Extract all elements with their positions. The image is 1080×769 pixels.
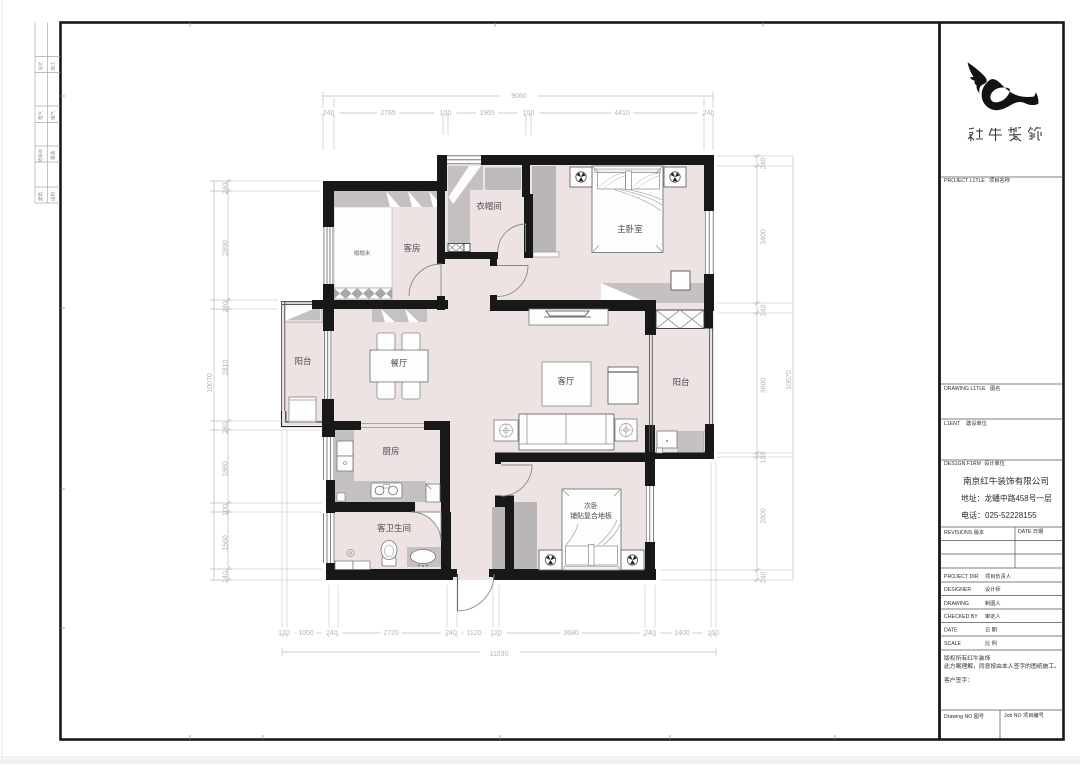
svg-text:Drawing NO 图号: Drawing NO 图号 [944,713,984,720]
svg-text:240: 240 [644,630,656,637]
svg-text:240: 240 [223,571,230,583]
svg-text:CHECKED BY: CHECKED BY [944,614,978,620]
svg-text:阳台: 阳台 [294,356,311,366]
svg-text:DRAWING L1TLE: DRAWING L1TLE [944,386,986,392]
svg-text:240: 240 [223,183,230,195]
svg-text:10670: 10670 [786,370,793,390]
svg-text:PROJECT DIR: PROJECT DIR [944,574,979,580]
svg-text:160: 160 [707,630,719,637]
svg-text:建设单位: 建设单位 [966,419,987,427]
svg-text:建筑: 建筑 [37,192,44,201]
svg-text:地址：龙蟠中路458号一层: 地址：龙蟠中路458号一层 [961,493,1052,503]
svg-text:设计师: 设计师 [985,585,1001,593]
svg-text:3400: 3400 [761,229,768,245]
svg-text:100: 100 [223,504,230,516]
svg-text:1400: 1400 [674,630,690,637]
svg-text:L1ENT: L1ENT [944,421,961,427]
svg-text:2720: 2720 [383,630,399,637]
svg-text:图名: 图名 [990,384,1000,392]
svg-text:11030: 11030 [490,651,509,658]
svg-text:2810: 2810 [223,360,230,376]
svg-text:1965: 1965 [479,110,495,117]
svg-text:240: 240 [323,110,335,117]
svg-text:REVISIONS 版本: REVISIONS 版本 [944,528,984,536]
svg-text:设计: 设计 [37,61,44,70]
svg-text:客厅: 客厅 [557,376,575,386]
svg-text:南京红牛装饰有限公司: 南京红牛装饰有限公司 [963,475,1049,486]
svg-text:日 期: 日 期 [985,627,997,634]
svg-text:240: 240 [761,305,768,317]
svg-text:1560: 1560 [223,535,230,551]
svg-text:1120: 1120 [466,630,481,637]
svg-text:主卧室: 主卧室 [617,224,643,234]
svg-text:SCALE: SCALE [944,641,962,647]
svg-text:项目负责人: 项目负责人 [985,572,1011,580]
svg-text:餐厅: 餐厅 [390,358,408,368]
svg-text:PROJECT L1TLE: PROJECT L1TLE [944,178,985,184]
svg-text:240: 240 [326,630,338,637]
svg-text:1050: 1050 [298,630,314,637]
svg-text:客卫生间: 客卫生间 [377,523,411,533]
svg-text:2890: 2890 [223,240,230,256]
svg-text:竣工: 竣工 [50,61,57,70]
svg-text:DATE 日期: DATE 日期 [1018,528,1043,535]
svg-text:120: 120 [278,630,290,637]
svg-text:设计单位: 设计单位 [984,459,1005,467]
svg-text:审定人: 审定人 [985,612,1001,620]
svg-text:240: 240 [761,158,768,170]
svg-text:240: 240 [445,630,457,637]
svg-text:制图人: 制图人 [985,599,1001,607]
svg-text:电话：025-52228155: 电话：025-52228155 [961,510,1037,520]
svg-text:100: 100 [440,110,452,117]
svg-text:阳台: 阳台 [672,377,689,387]
svg-text:厨房: 厨房 [382,446,399,456]
svg-text:1860: 1860 [223,461,230,477]
svg-text:10070: 10070 [207,373,214,393]
svg-text:3600: 3600 [761,378,768,394]
svg-text:此方案理解，同意按由本人签字的图纸施工。: 此方案理解，同意按由本人签字的图纸施工。 [944,662,1060,670]
svg-text:DESIGNER: DESIGNER [944,587,971,593]
svg-text:电气: 电气 [37,111,43,120]
svg-text:版权所有红牛装饰: 版权所有红牛装饰 [944,654,991,662]
svg-text:DATE: DATE [944,628,958,634]
svg-text:暖通: 暖通 [50,151,57,160]
svg-text:给排水: 给排水 [37,148,44,162]
svg-text:结构: 结构 [50,192,57,201]
svg-text:240: 240 [223,301,230,313]
svg-text:240: 240 [761,572,768,584]
svg-text:衣帽间: 衣帽间 [476,201,502,211]
svg-text:客户签字：: 客户签字： [944,676,973,684]
svg-text:项目名称: 项目名称 [989,176,1010,184]
svg-text:3680: 3680 [563,630,579,637]
svg-text:铺贴复合地板: 铺贴复合地板 [570,511,612,520]
svg-text:240: 240 [703,110,715,117]
svg-text:9060: 9060 [511,93,527,100]
svg-text:Job NO 项目编号: Job NO 项目编号 [1004,711,1044,719]
svg-text:2800: 2800 [761,508,768,524]
svg-text:次卧: 次卧 [584,501,598,510]
svg-text:100: 100 [761,452,768,464]
svg-text:客房: 客房 [403,243,420,253]
svg-text:4410: 4410 [614,110,630,117]
svg-text:比 例: 比 例 [985,639,997,647]
svg-text:DRAWING: DRAWING [944,601,969,607]
svg-text:2765: 2765 [380,110,396,117]
svg-text:DES1GN F1RM: DES1GN F1RM [944,461,981,467]
svg-text:120: 120 [490,630,502,637]
svg-text:电气: 电气 [50,111,56,120]
svg-text:240: 240 [223,422,230,434]
svg-text:100: 100 [523,110,535,117]
svg-text:榻榻米: 榻榻米 [354,249,371,257]
